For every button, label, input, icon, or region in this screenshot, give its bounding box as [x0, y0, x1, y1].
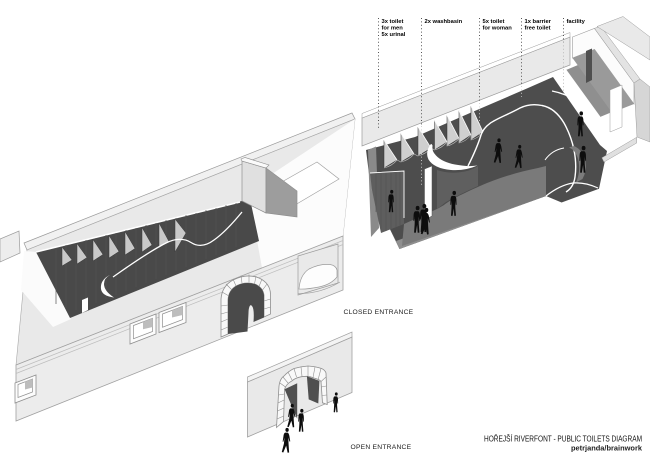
svg-text:CLOSED ENTRANCE: CLOSED ENTRANCE	[344, 309, 414, 316]
svg-text:free toilet: free toilet	[525, 26, 551, 32]
svg-text:OPEN ENTRANCE: OPEN ENTRANCE	[351, 444, 412, 451]
svg-text:petrjanda/brainwork: petrjanda/brainwork	[571, 446, 642, 453]
svg-text:2x washbasin: 2x washbasin	[425, 19, 463, 25]
svg-text:for woman: for woman	[483, 26, 513, 32]
svg-text:5x urinal: 5x urinal	[382, 32, 406, 38]
svg-text:1x barrier: 1x barrier	[525, 19, 552, 25]
svg-text:for men: for men	[382, 26, 404, 32]
svg-text:5x toilet: 5x toilet	[483, 19, 505, 25]
svg-text:facility: facility	[567, 19, 586, 25]
svg-text:3x toilet: 3x toilet	[382, 19, 404, 25]
svg-text:HOŘEJŠÍ RIVERFONT - PUBLIC TOI: HOŘEJŠÍ RIVERFONT - PUBLIC TOILETS DIAGR…	[484, 434, 642, 444]
